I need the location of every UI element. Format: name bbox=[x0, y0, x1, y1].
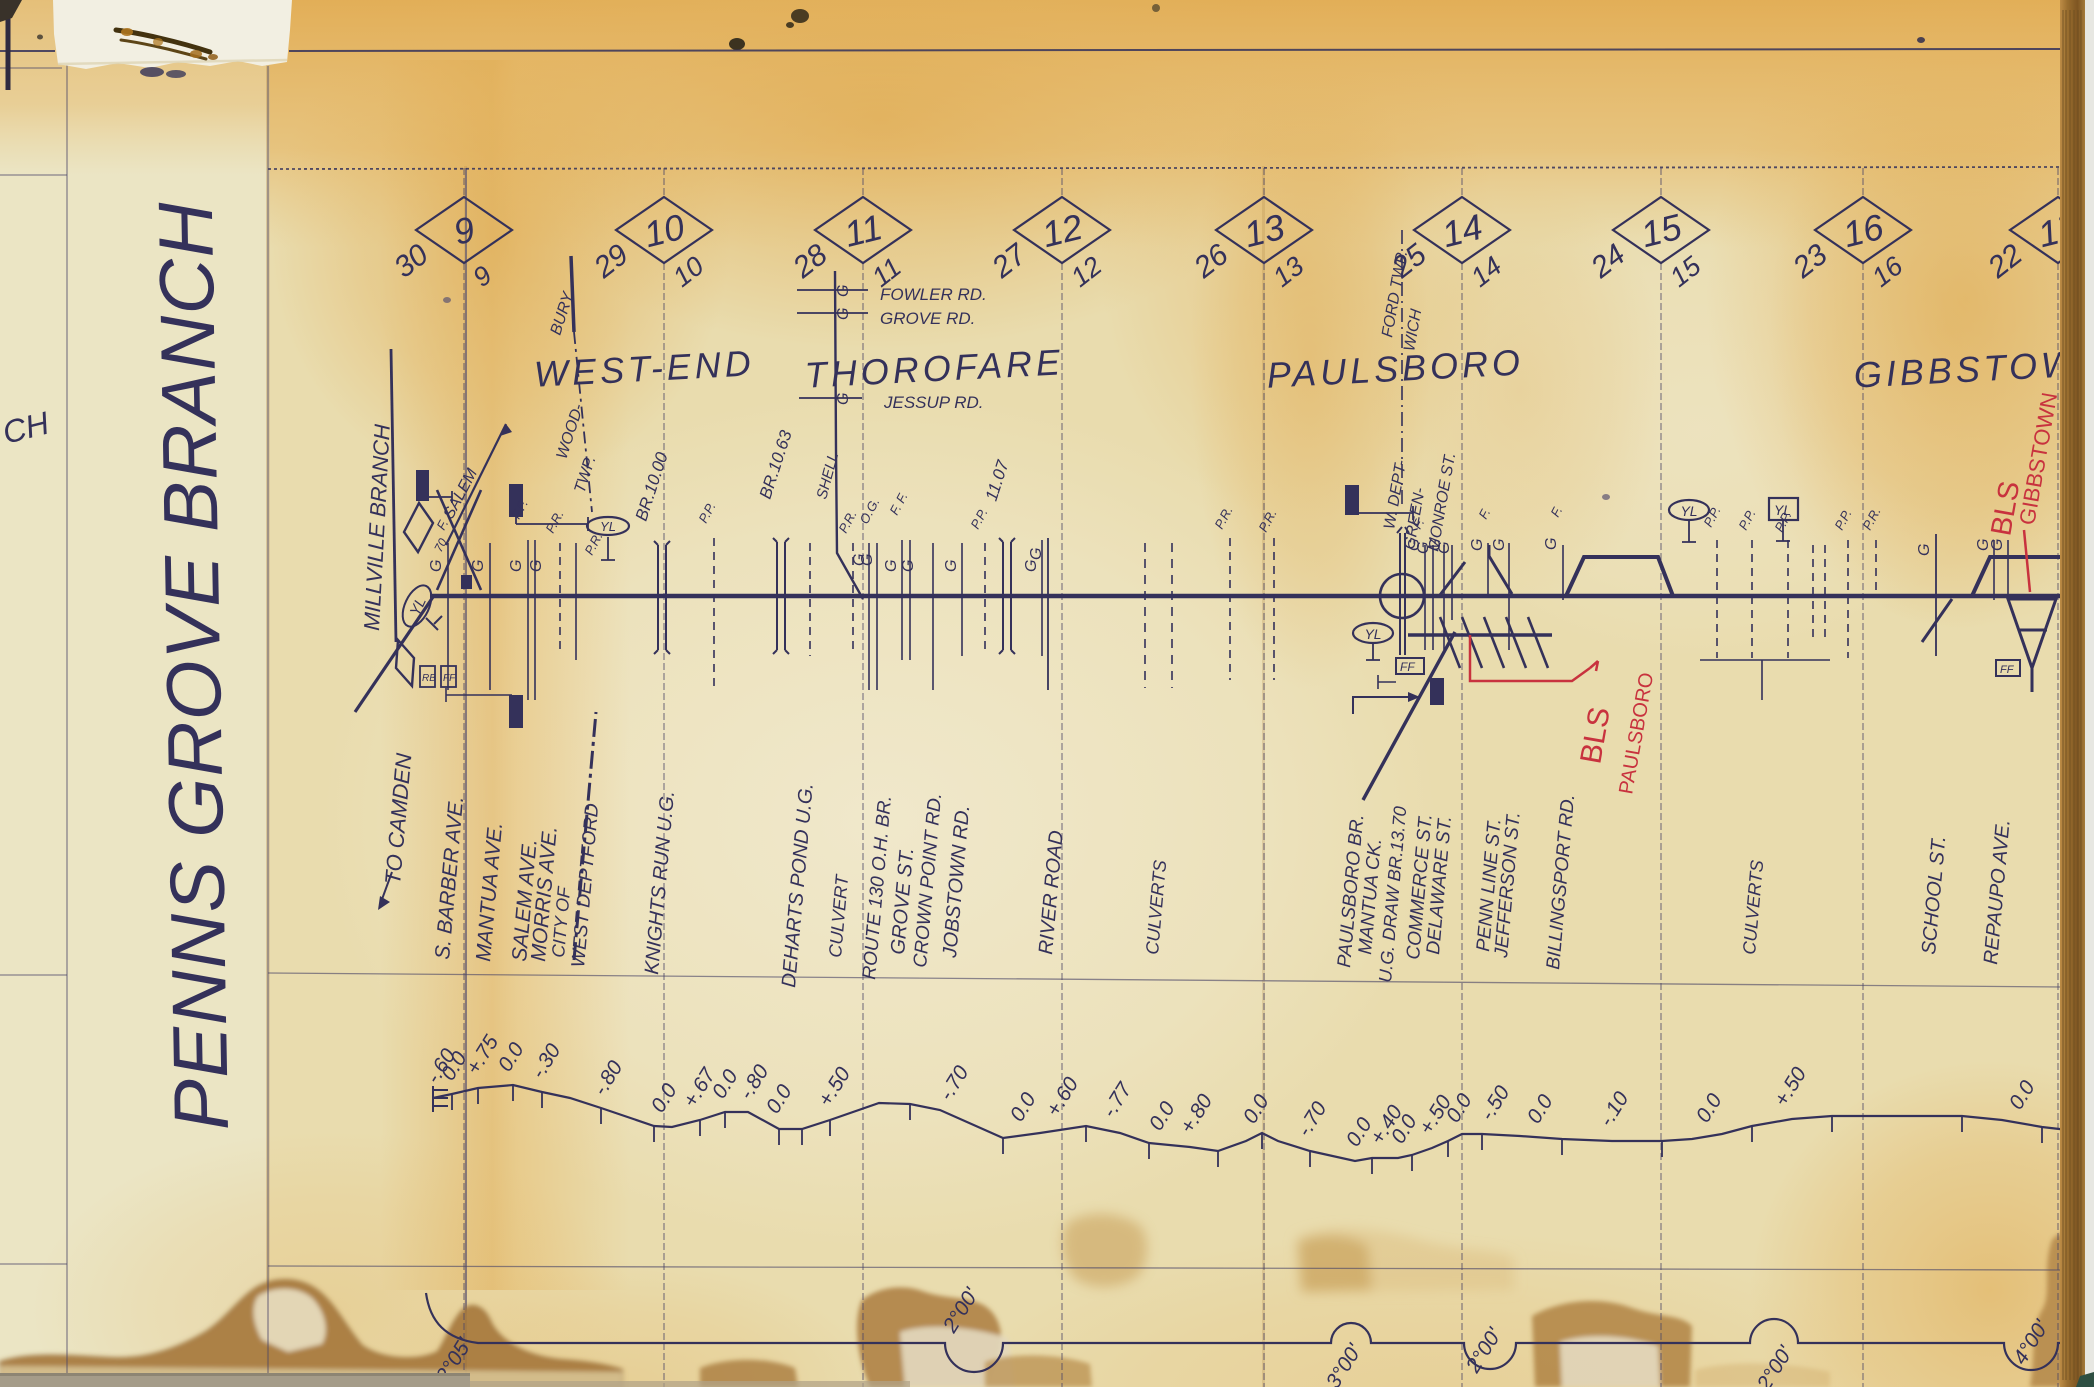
svg-text:PENNS GROVE BRANCH: PENNS GROVE BRANCH bbox=[143, 201, 245, 1132]
svg-text:G: G bbox=[1469, 539, 1486, 551]
svg-text:G: G bbox=[1436, 542, 1453, 554]
svg-text:YL: YL bbox=[1774, 502, 1791, 518]
svg-text:G: G bbox=[1023, 560, 1040, 572]
svg-text:G: G bbox=[1028, 548, 1045, 560]
svg-text:G: G bbox=[900, 560, 917, 572]
svg-text:G: G bbox=[943, 560, 960, 572]
svg-text:G: G bbox=[508, 560, 525, 572]
svg-text:G: G bbox=[1543, 538, 1560, 550]
svg-text:G: G bbox=[883, 560, 900, 572]
svg-text:G: G bbox=[1916, 544, 1933, 556]
svg-text:RB: RB bbox=[422, 673, 436, 684]
svg-text:FF: FF bbox=[1400, 660, 1415, 674]
svg-text:FF: FF bbox=[2000, 664, 2015, 676]
svg-text:G: G bbox=[1491, 539, 1508, 551]
svg-text:G: G bbox=[470, 560, 487, 572]
svg-text:G: G bbox=[835, 393, 852, 405]
svg-text:G: G bbox=[835, 308, 852, 320]
svg-text:JESSUP RD.: JESSUP RD. bbox=[883, 393, 984, 412]
svg-text:YL: YL bbox=[1364, 626, 1381, 642]
svg-text:G: G bbox=[428, 560, 445, 572]
svg-text:FOWLER RD.: FOWLER RD. bbox=[880, 285, 987, 304]
svg-text:G: G bbox=[1989, 539, 2006, 551]
svg-text:YL: YL bbox=[1680, 503, 1697, 519]
svg-text:YL: YL bbox=[600, 519, 616, 534]
svg-text:FF: FF bbox=[443, 673, 456, 684]
svg-text:GROVE RD.: GROVE RD. bbox=[880, 309, 975, 328]
svg-text:G: G bbox=[835, 285, 852, 297]
svg-text:G: G bbox=[528, 560, 545, 572]
svg-text:G: G bbox=[859, 554, 876, 566]
